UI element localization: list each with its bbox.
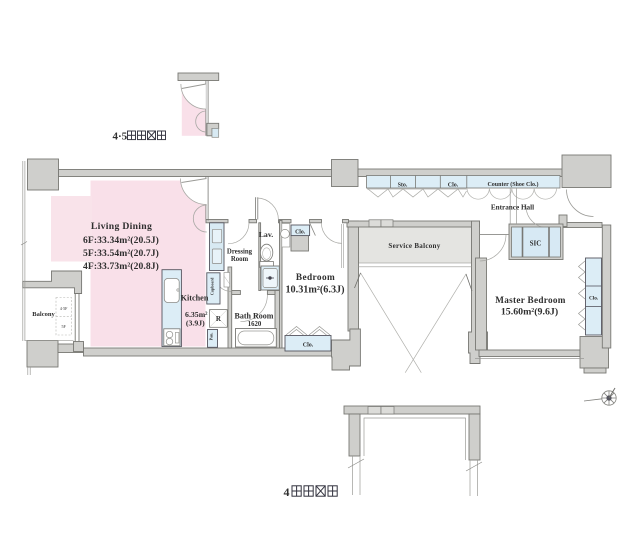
svg-text:4·5F: 4·5F bbox=[60, 306, 68, 311]
svg-text:SIC: SIC bbox=[530, 240, 542, 248]
svg-text:Dressing: Dressing bbox=[227, 248, 253, 255]
svg-text:(3.9J): (3.9J) bbox=[186, 318, 205, 327]
svg-text:Balcony: Balcony bbox=[32, 311, 55, 318]
svg-text:Entrance Hall: Entrance Hall bbox=[491, 204, 534, 212]
svg-text:4·5: 4·5 bbox=[113, 131, 128, 143]
svg-text:4: 4 bbox=[284, 485, 290, 499]
svg-text:5F:33.54m²(20.7J): 5F:33.54m²(20.7J) bbox=[83, 248, 159, 259]
svg-text:Bath Room: Bath Room bbox=[235, 312, 274, 321]
svg-text:Service Balcony: Service Balcony bbox=[388, 242, 440, 250]
svg-text:Kitchen: Kitchen bbox=[181, 293, 209, 302]
svg-text:6F:33.34m²(20.5J): 6F:33.34m²(20.5J) bbox=[83, 235, 159, 246]
svg-text:10.31m²(6.3J): 10.31m²(6.3J) bbox=[285, 284, 344, 295]
svg-text:15.60m²(9.6J): 15.60m²(9.6J) bbox=[501, 306, 558, 317]
svg-text:Clo.: Clo. bbox=[303, 343, 314, 349]
svg-text:Room: Room bbox=[231, 256, 249, 263]
svg-text:Master Bedroom: Master Bedroom bbox=[495, 295, 566, 305]
svg-text:Clo.: Clo. bbox=[295, 229, 306, 235]
svg-text:Living Dining: Living Dining bbox=[91, 221, 152, 232]
svg-text:Clo.: Clo. bbox=[448, 182, 459, 188]
svg-text:Lav.: Lav. bbox=[259, 230, 274, 239]
svg-text:4F:33.73m²(20.8J): 4F:33.73m²(20.8J) bbox=[83, 261, 159, 272]
svg-text:1620: 1620 bbox=[248, 321, 262, 328]
svg-text:Clo.: Clo. bbox=[589, 296, 599, 302]
svg-text:Bedroom: Bedroom bbox=[296, 273, 335, 283]
svg-text:Pan.: Pan. bbox=[209, 333, 214, 341]
svg-text:Sto.: Sto. bbox=[398, 182, 408, 188]
svg-text:Counter (Shoe Clo.): Counter (Shoe Clo.) bbox=[487, 181, 538, 188]
svg-text:Cupboard: Cupboard bbox=[210, 277, 215, 295]
